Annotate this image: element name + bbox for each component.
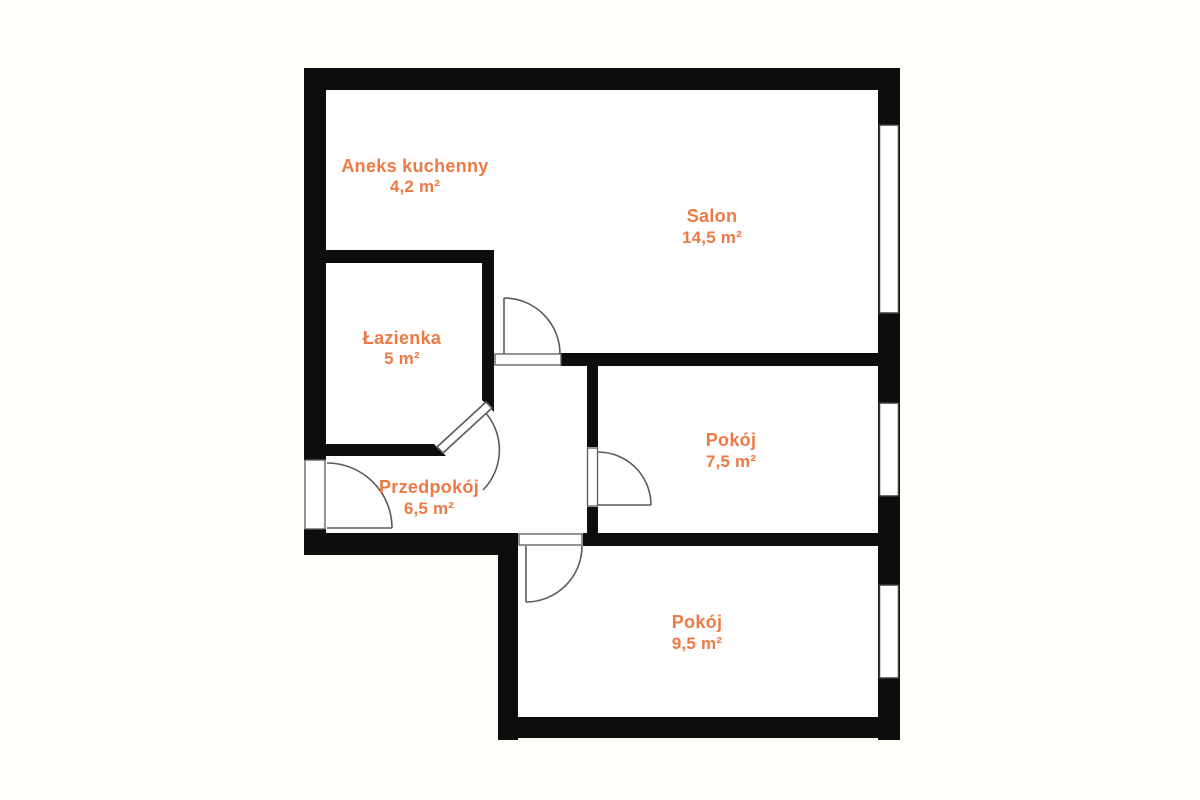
wall-hall-room-divider-lower bbox=[587, 507, 598, 533]
room-name-kitchen: Aneks kuchenny bbox=[341, 156, 488, 176]
floor-plan-canvas: Aneks kuchenny 4,2 m² Salon 14,5 m² Łazi… bbox=[0, 0, 1200, 800]
room-name-bathroom: Łazienka bbox=[363, 328, 442, 348]
wall-bathroom-right bbox=[482, 250, 494, 412]
wall-outer-hall-bottom bbox=[304, 533, 518, 555]
door-opening-entry bbox=[305, 460, 325, 529]
room-name-room-75: Pokój bbox=[706, 430, 757, 450]
wall-kitchen-bathroom-divider bbox=[326, 250, 494, 263]
room-name-room-95: Pokój bbox=[672, 612, 723, 632]
wall-between-rooms bbox=[583, 533, 878, 546]
window-room-95 bbox=[880, 585, 899, 678]
door-opening-room-95 bbox=[519, 534, 582, 545]
wall-salon-hall-divider bbox=[561, 353, 878, 366]
room-area-room-75: 7,5 m² bbox=[706, 452, 756, 471]
wall-bathroom-bottom bbox=[326, 444, 446, 456]
door-opening-salon bbox=[495, 354, 561, 365]
door-opening-room-75 bbox=[588, 448, 598, 506]
room-area-kitchen: 4,2 m² bbox=[390, 177, 440, 196]
wall-outer-left-upper bbox=[304, 68, 326, 460]
wall-hall-room-divider-upper bbox=[587, 366, 598, 447]
room-name-salon: Salon bbox=[687, 206, 738, 226]
room-name-hallway: Przedpokój bbox=[379, 477, 479, 497]
room-area-room-95: 9,5 m² bbox=[672, 634, 722, 653]
wall-outer-lower-room-left bbox=[498, 533, 518, 740]
wall-outer-bottom bbox=[498, 717, 900, 738]
room-area-hallway: 6,5 m² bbox=[404, 499, 454, 518]
room-area-salon: 14,5 m² bbox=[682, 228, 742, 247]
wall-outer-top bbox=[304, 68, 900, 90]
window-salon bbox=[880, 125, 899, 313]
floor-plan: Aneks kuchenny 4,2 m² Salon 14,5 m² Łazi… bbox=[0, 0, 1200, 800]
room-area-bathroom: 5 m² bbox=[384, 349, 420, 368]
window-room-75 bbox=[880, 403, 899, 496]
